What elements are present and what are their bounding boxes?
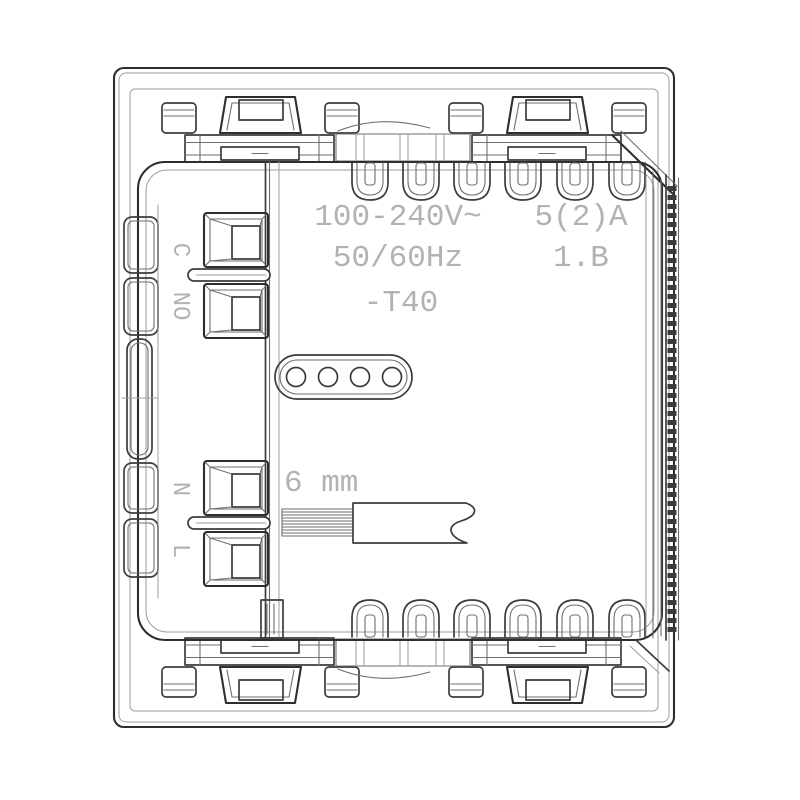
terminal-release-lever-bottom	[188, 517, 270, 529]
mounting-claw-bottom-left	[162, 638, 359, 703]
terminal-block-l	[204, 532, 268, 586]
technical-drawing-switch-module-rear: C NO N L 100-240V~ 50/60Hz 5(2)A 1.B -T4…	[0, 0, 800, 800]
terminal-release-lever-top	[188, 269, 270, 281]
terminal-block-c	[204, 213, 268, 267]
voltage-rating-text: 100-240V~	[314, 200, 481, 235]
partition-wall	[261, 162, 283, 638]
terminal-label-c: C	[166, 243, 193, 257]
fixing-hole	[351, 368, 370, 387]
fixing-hole	[287, 368, 306, 387]
fixing-clip-row-top	[352, 163, 645, 200]
screenshot-canvas: C NO N L 100-240V~ 50/60Hz 5(2)A 1.B -T4…	[0, 0, 800, 800]
center-rib-bar-bottom	[336, 639, 470, 678]
mounting-claw-top-left	[162, 97, 359, 162]
terminal-block-no	[204, 284, 268, 338]
terminal-label-n: N	[166, 482, 193, 496]
left-flex-tab-rail	[122, 205, 158, 598]
insulation-class-text: 1.B	[553, 241, 609, 276]
frequency-rating-text: 50/60Hz	[333, 241, 463, 276]
corner-chamfer-top-right	[612, 135, 673, 194]
current-rating-text: 5(2)A	[534, 200, 627, 235]
bare-conductor	[282, 509, 354, 536]
mounting-claw-bottom-right	[449, 638, 646, 703]
mounting-claw-top-right	[449, 97, 646, 162]
fixing-holes-oval	[275, 355, 412, 399]
terminal-block-n	[204, 461, 268, 515]
fixing-hole	[319, 368, 338, 387]
terminal-label-no: NO	[166, 292, 193, 321]
fixing-clip-row-bottom	[352, 600, 645, 637]
fixing-hole	[383, 368, 402, 387]
temperature-rating-text: -T40	[364, 286, 438, 321]
center-rib-bar-top	[336, 122, 470, 161]
strip-length-text: 6 mm	[284, 466, 358, 501]
wire-insulation	[353, 503, 475, 543]
frame-inner-lip	[130, 89, 658, 711]
terminal-label-l: L	[166, 544, 193, 558]
outer-frame	[114, 68, 674, 727]
wire-strip-diagram: 6 mm	[282, 466, 475, 543]
